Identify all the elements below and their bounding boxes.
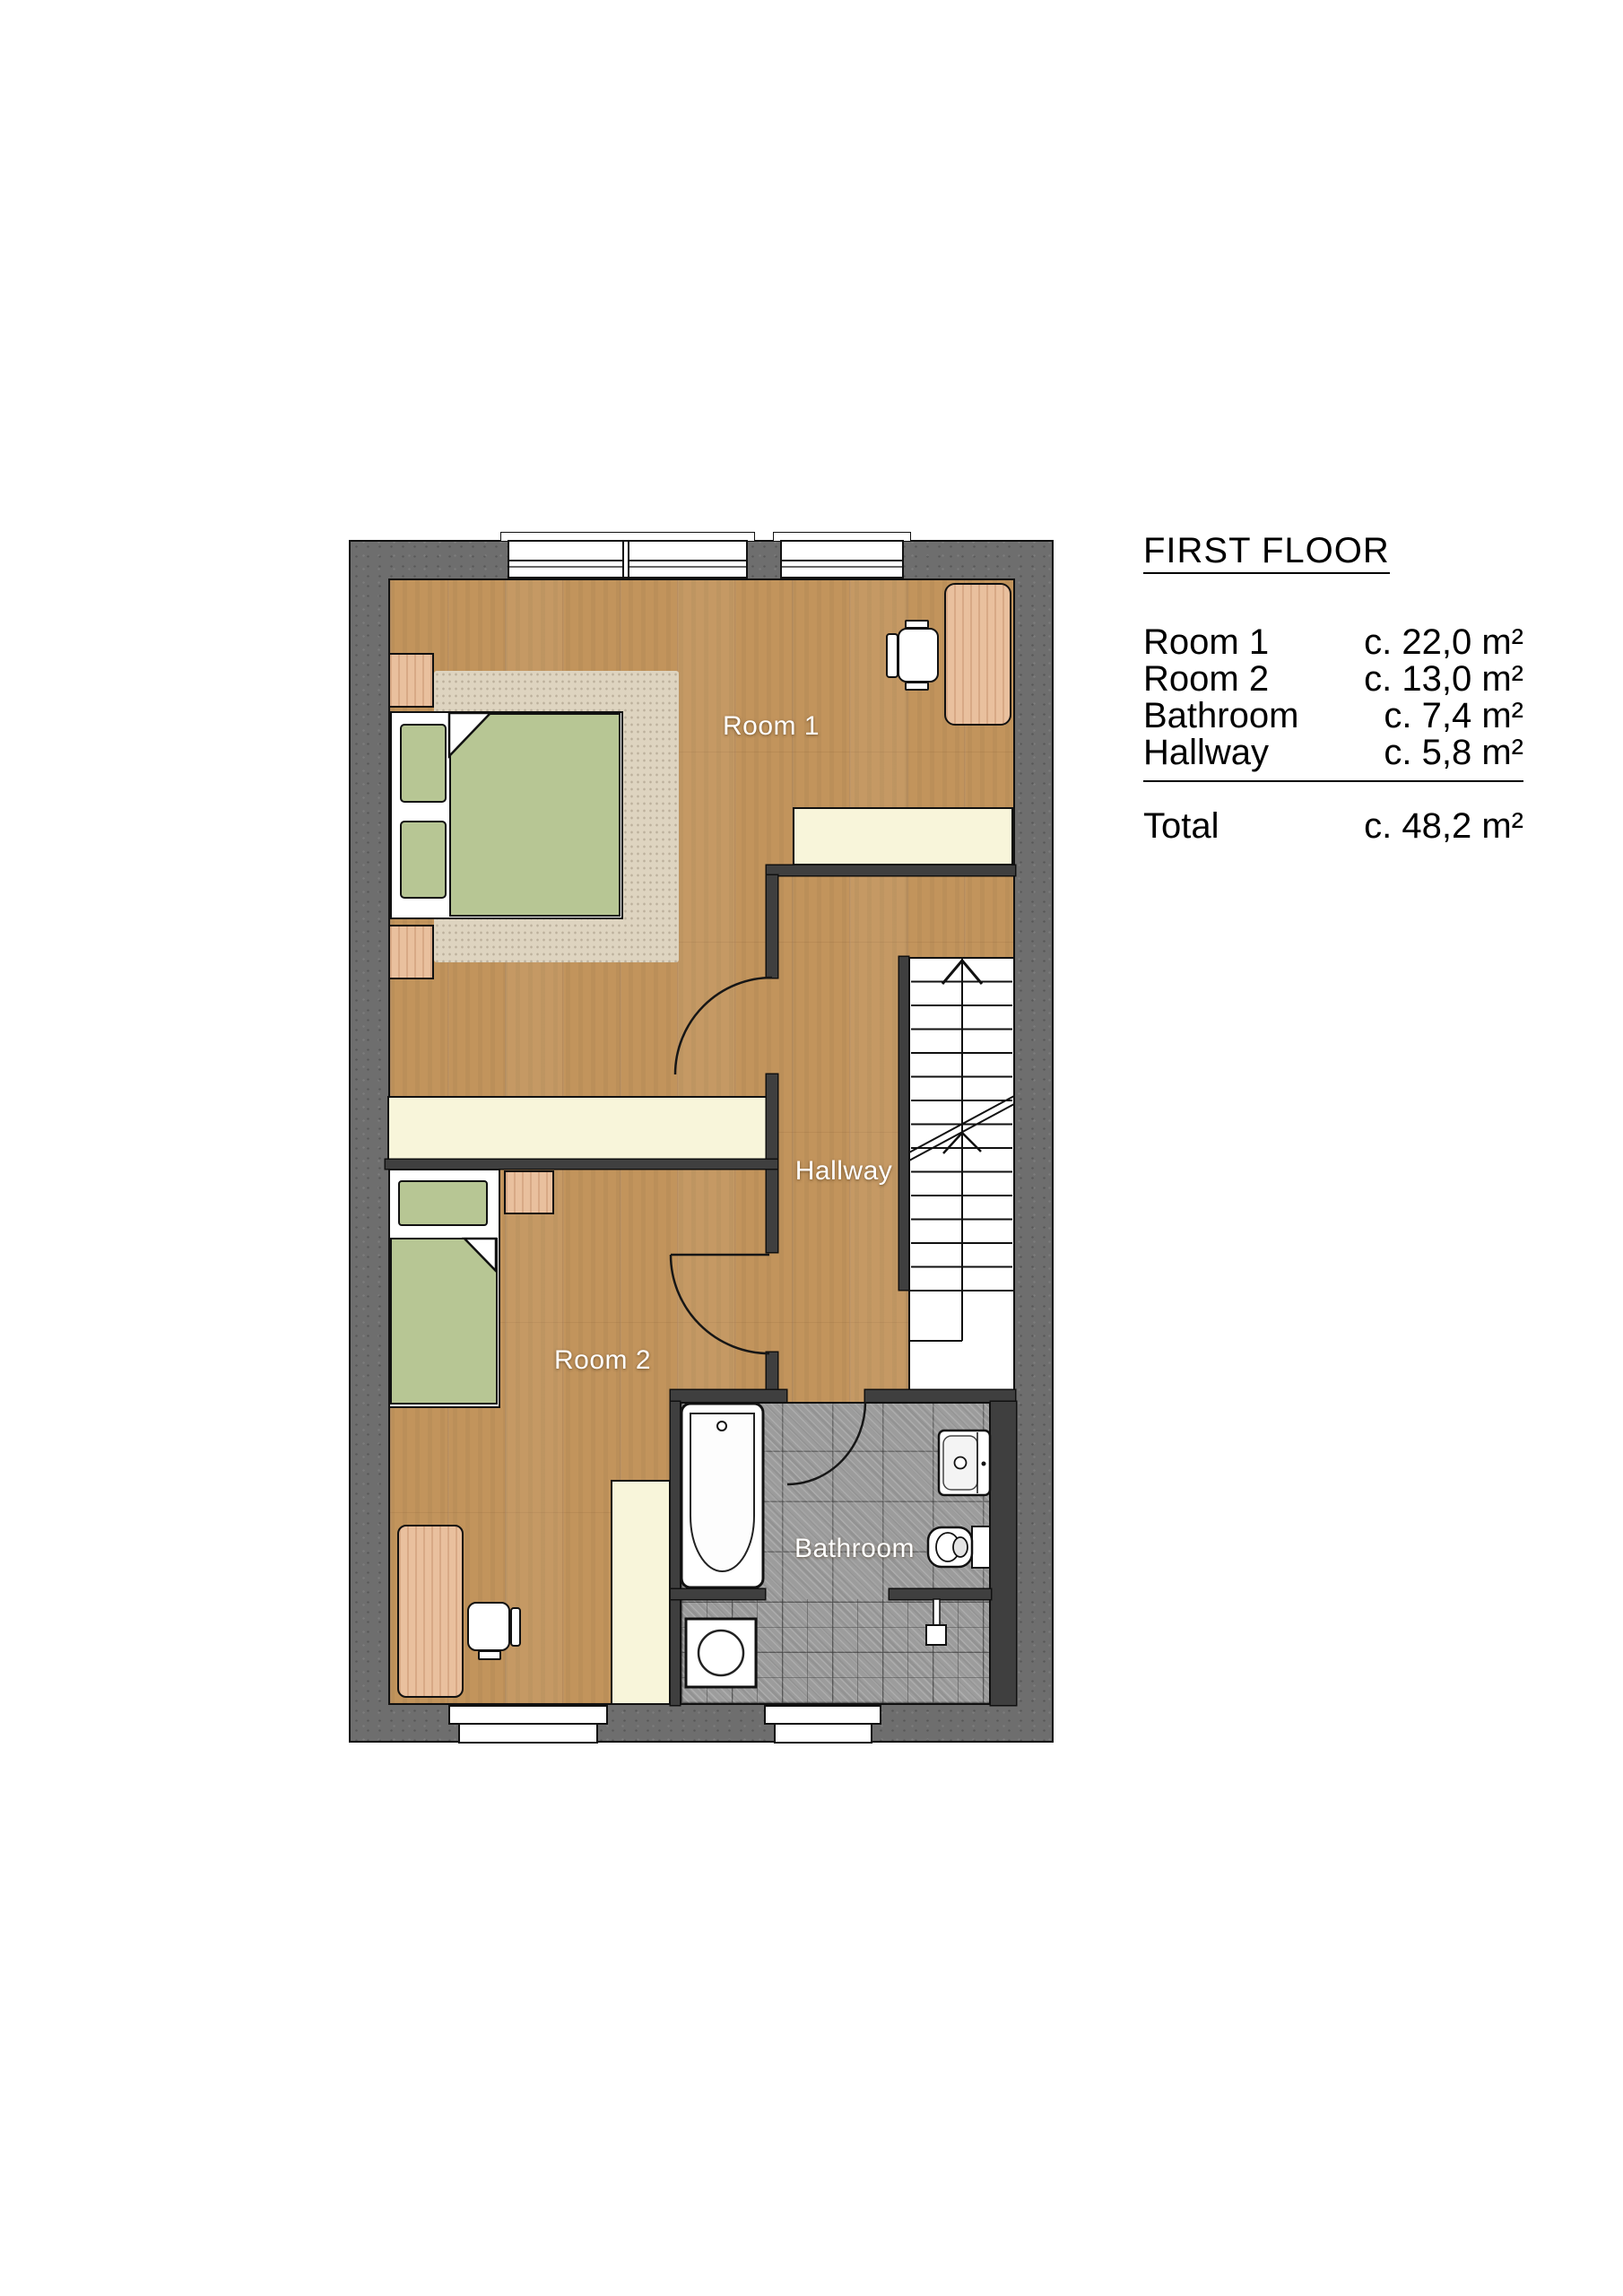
legend-room-area: c. 22,0 m² — [1364, 624, 1523, 661]
office-chair-armrest — [478, 1650, 501, 1660]
wall-bathroom-top — [671, 1390, 786, 1402]
wall-shower-divider — [671, 1589, 765, 1599]
window-bottom-left-sill — [458, 1723, 598, 1744]
wardrobe-room2 — [611, 1480, 671, 1705]
legend-room-area: c. 5,8 m² — [1384, 735, 1523, 771]
legend-room-name: Hallway — [1143, 735, 1269, 771]
nightstand — [388, 653, 434, 708]
window-mullion — [622, 542, 629, 577]
wall-room1-room2 — [386, 1160, 777, 1169]
window-bottom-left — [448, 1705, 608, 1725]
shower-floor — [681, 1599, 989, 1703]
legend-room-name: Room 2 — [1143, 661, 1269, 698]
legend-room-area: c. 7,4 m² — [1384, 698, 1523, 735]
legend-total-label: Total — [1143, 808, 1219, 845]
bathroom-label: Bathroom — [794, 1534, 915, 1564]
office-chair-back — [510, 1607, 521, 1647]
wall-shower-divider — [890, 1589, 991, 1599]
legend-rows: Room 1 c. 22,0 m² Room 2 c. 13,0 m² Bath… — [1143, 624, 1523, 771]
window-bottom-middle-sill — [774, 1723, 872, 1744]
legend-row: Room 1 c. 22,0 m² — [1143, 624, 1523, 661]
legend-row: Hallway c. 5,8 m² — [1143, 735, 1523, 771]
wall-bathroom-left — [671, 1402, 680, 1705]
hallway-label: Hallway — [795, 1156, 893, 1187]
bed-duvet — [449, 713, 621, 917]
legend-room-name: Room 1 — [1143, 624, 1269, 661]
office-chair — [467, 1602, 510, 1651]
window-top-left — [508, 540, 748, 578]
bed-pillow — [400, 724, 447, 803]
legend: FIRST FLOOR Room 1 c. 22,0 m² Room 2 c. … — [1143, 531, 1523, 845]
nightstand — [504, 1170, 554, 1214]
stair-treads — [911, 959, 1012, 1291]
nightstand — [388, 925, 434, 979]
office-chair-armrest — [905, 682, 929, 691]
legend-room-name: Bathroom — [1143, 698, 1298, 735]
office-chair — [898, 628, 939, 683]
legend-room-area: c. 13,0 m² — [1364, 661, 1523, 698]
wardrobe-room1 — [793, 807, 1013, 865]
desk — [397, 1525, 464, 1698]
bed-pillow — [398, 1180, 488, 1226]
legend-row: Bathroom c. 7,4 m² — [1143, 698, 1523, 735]
room2-label: Room 2 — [554, 1345, 651, 1376]
wall-hallway — [767, 875, 777, 978]
desk — [944, 583, 1011, 726]
wall-bathroom-right — [991, 1402, 1016, 1705]
legend-total-row: Total c. 48,2 m² — [1143, 808, 1523, 845]
wall-stairs — [899, 957, 908, 1290]
window-top-right — [780, 540, 904, 578]
window-bottom-middle — [764, 1705, 881, 1725]
bed-pillow — [400, 821, 447, 899]
legend-row: Room 2 c. 13,0 m² — [1143, 661, 1523, 698]
floor-plan: Room 1 Room 2 Hallway Bathroom — [0, 0, 1623, 2296]
room1-label: Room 1 — [723, 711, 820, 742]
office-chair-back — [886, 633, 898, 678]
wall-bathroom-top — [865, 1390, 1015, 1402]
wall-room1-hallway — [767, 865, 1015, 875]
legend-divider — [1143, 780, 1523, 782]
wall-hallway — [767, 1352, 777, 1392]
legend-total-value: c. 48,2 m² — [1364, 808, 1523, 845]
wardrobe-divider — [387, 1096, 769, 1161]
legend-title: FIRST FLOOR — [1143, 531, 1390, 574]
bed-duvet — [390, 1238, 498, 1405]
